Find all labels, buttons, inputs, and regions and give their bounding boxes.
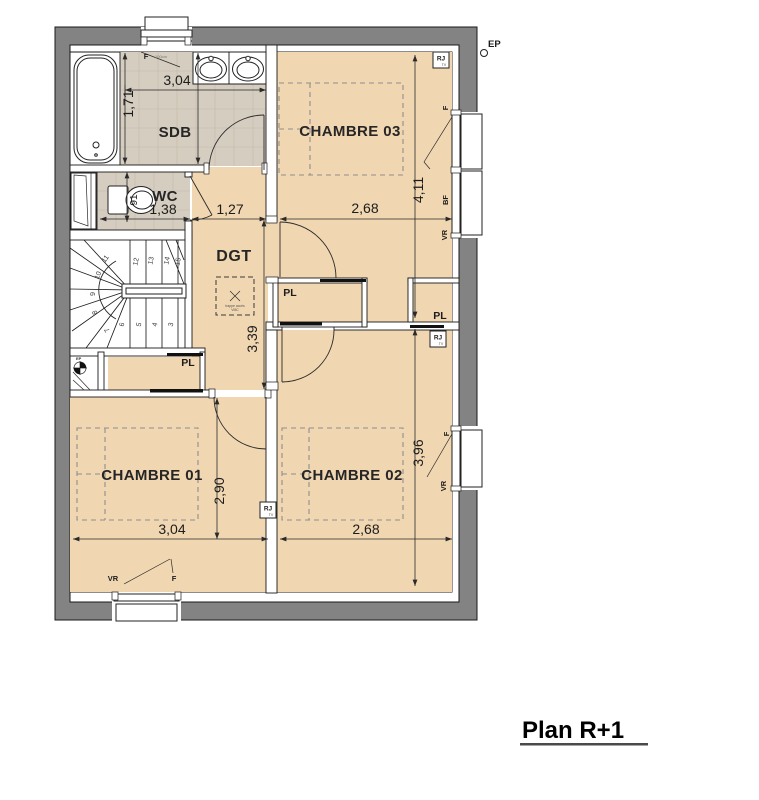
closet-pl3-wall-top — [408, 278, 459, 283]
dim-hall-width: 1,27 — [216, 201, 243, 217]
bathtub — [74, 55, 117, 163]
closet-label-pl3: PL — [433, 310, 447, 322]
window-note-sdb: 100cm — [155, 54, 168, 59]
rj-socket-chambre2: RJ TV — [430, 331, 446, 347]
wall-sdb-bottom — [70, 165, 208, 172]
wall-pl1-right — [200, 352, 205, 393]
floor-plan-page: 3 4 5 6 7 8 9 10 11 12 13 14 15 EP trapp… — [0, 0, 759, 800]
rj-label-ch2: RJ — [434, 335, 443, 342]
room-label-wc: WC — [152, 188, 178, 205]
room-label-chambre2: CHAMBRE 02 — [301, 467, 403, 484]
rj-label-ch1: RJ — [264, 506, 273, 513]
dim-ch2-depth: 3,96 — [410, 439, 426, 466]
tv-label-ch1: TV — [269, 513, 274, 517]
dim-ch1-width: 3,04 — [158, 521, 185, 537]
wall-wc-right-top — [185, 172, 192, 177]
plan-title: Plan R+1 — [522, 717, 624, 744]
room-label-sdb: SDB — [159, 124, 192, 141]
dim-ch1-depth: 2,90 — [211, 477, 227, 504]
room-label-chambre3: CHAMBRE 03 — [299, 123, 401, 140]
window-label-f-ch2: F — [442, 431, 451, 436]
window-label-bf-ch3: BF — [441, 195, 450, 205]
room-chambre1-floor — [70, 397, 268, 592]
vmc-note-line2: VMC — [231, 308, 239, 312]
dim-toilet: 91 — [129, 194, 140, 206]
door-panel-wc-left — [71, 173, 96, 229]
room-label-dgt: DGT — [216, 248, 252, 265]
ep-downpipe: EP — [481, 39, 502, 57]
stair-step-9: 9 — [90, 292, 97, 296]
window-label-vr-ch3: VR — [440, 229, 449, 240]
window-label-f-ch1: F — [172, 574, 177, 583]
tv-label-ch2: TV — [439, 342, 444, 346]
ep-closet-label: EP — [76, 356, 82, 361]
rj-label-ch3: RJ — [437, 56, 446, 63]
dim-sdb-depth: 1,71 — [120, 90, 136, 117]
room-label-chambre1: CHAMBRE 01 — [101, 467, 203, 484]
plan-title-block: Plan R+1 — [520, 717, 648, 746]
rj-socket-chambre1: RJ TV — [260, 502, 276, 518]
double-sink — [193, 52, 266, 84]
wall-wc-bottom — [70, 230, 192, 240]
closet-label-pl1: PL — [181, 357, 195, 369]
wall-ep-pl — [98, 352, 104, 393]
floor-plan-drawing: 3 4 5 6 7 8 9 10 11 12 13 14 15 EP trapp… — [0, 0, 759, 800]
dgt-ch3-doorway-floor — [266, 222, 280, 278]
closet-label-pl2: PL — [283, 287, 297, 299]
window-label-f-sdb: F — [144, 52, 149, 61]
dim-ch2-width: 2,68 — [352, 521, 379, 537]
tv-label-ch3: TV — [442, 63, 447, 67]
closet-pl2-wall-left — [273, 278, 278, 327]
dim-ch3-depth: 4,11 — [410, 177, 426, 203]
window-label-f-ch3: F — [441, 105, 450, 110]
wall-sdb-ch3 — [266, 45, 277, 222]
wall-ch1-ch2 — [266, 330, 277, 593]
closet-pl2-wall-right — [362, 278, 367, 327]
dim-dgt-depth: 3,39 — [244, 325, 260, 352]
window-label-vr-ch2: VR — [439, 480, 448, 491]
rj-socket-chambre3: RJ TV — [433, 52, 449, 68]
closet-pl3-wall-left — [408, 278, 413, 322]
plan-title-underline — [520, 743, 648, 746]
window-label-vr-ch1: VR — [108, 574, 119, 583]
dim-sdb-width: 3,04 — [163, 72, 190, 88]
dim-ch3-width: 2,68 — [351, 200, 378, 216]
ep-label: EP — [488, 39, 501, 50]
